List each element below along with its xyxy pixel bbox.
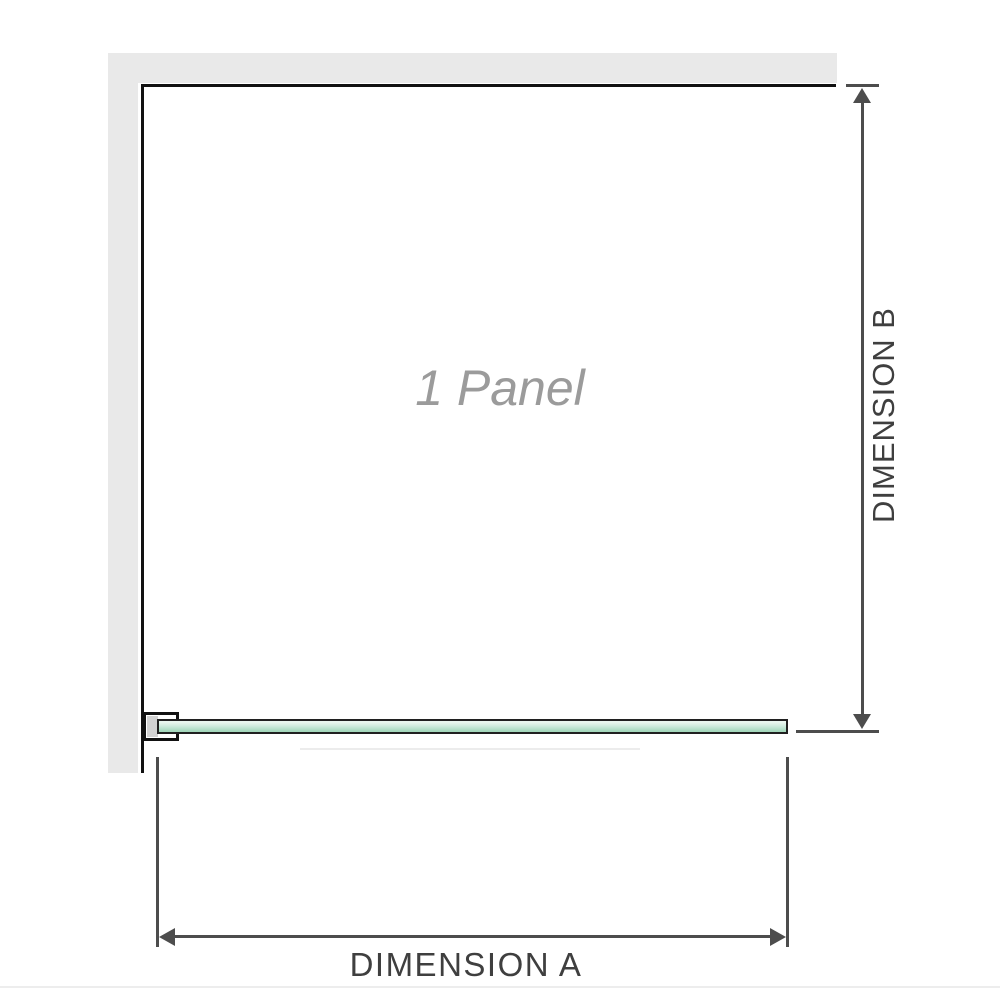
dimension-a-right-extension-line (786, 757, 789, 947)
dimension-b-top-tick (846, 84, 879, 87)
wall-top-bar (108, 53, 837, 83)
dimension-b-bottom-tick (796, 730, 879, 733)
glass-panel-shadow (300, 748, 640, 750)
enclosure-outline-top (141, 84, 836, 87)
image-bottom-edge-line (0, 986, 1000, 988)
dimension-a-arrow-line (172, 935, 774, 938)
enclosure-outline-left (141, 84, 144, 773)
dimension-a-label: DIMENSION A (316, 944, 616, 986)
dimension-b-arrowhead-up-icon (853, 88, 871, 103)
wall-left-bar (108, 53, 138, 773)
dimension-a-arrowhead-right-icon (770, 928, 786, 946)
dimension-a-left-extension-line (156, 757, 159, 947)
panel-dimension-diagram: 1 Panel DIMENSION B DIMENSION A (0, 0, 1000, 1000)
glass-panel (157, 719, 788, 734)
dimension-b-arrowhead-down-icon (853, 714, 871, 729)
dimension-b-label: DIMENSION B (867, 285, 901, 545)
dimension-b-arrow-line (861, 98, 864, 720)
dimension-a-arrowhead-left-icon (159, 928, 175, 946)
panel-count-label: 1 Panel (350, 358, 650, 418)
